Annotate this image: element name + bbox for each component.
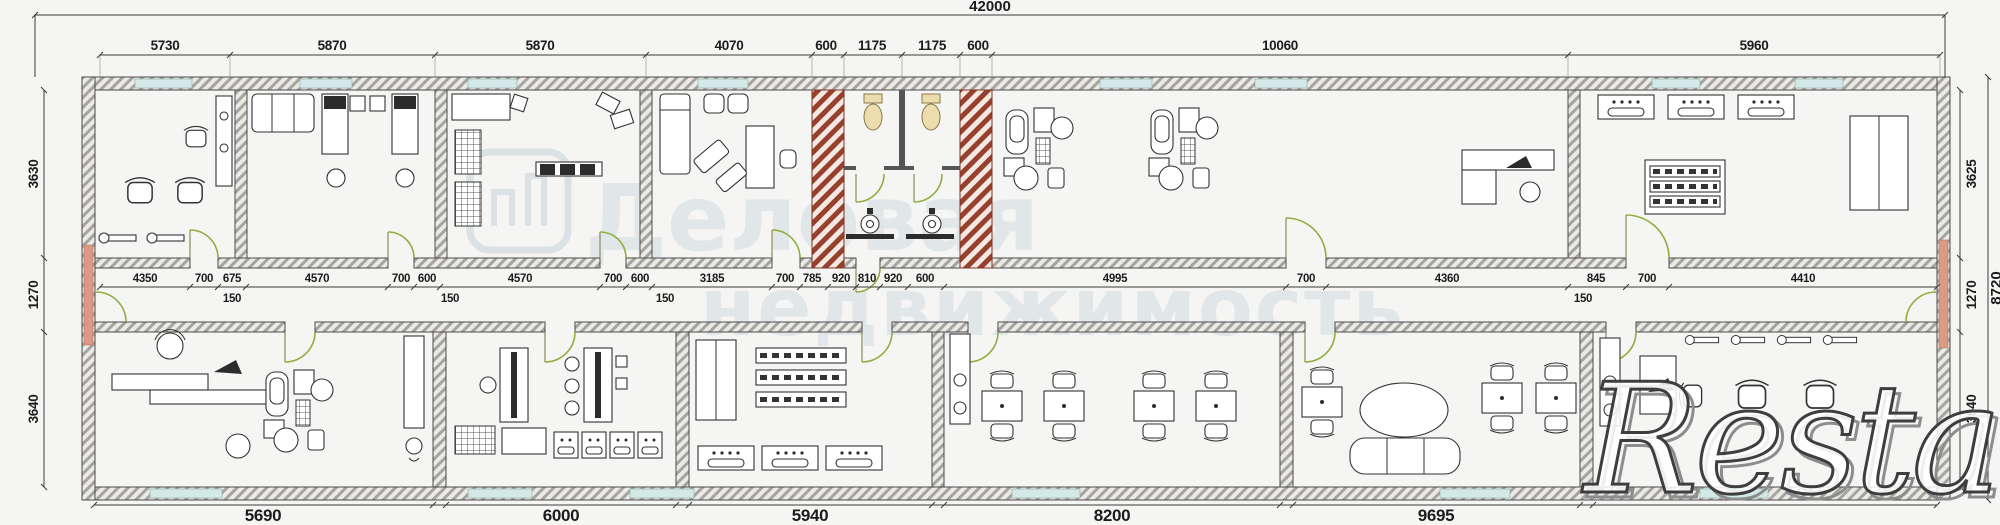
dim-bottom-2: 5940 xyxy=(792,506,829,525)
entrance-door-left xyxy=(84,245,93,345)
dim-chain-9: 3185 xyxy=(700,273,725,285)
dim-chain-5: 600 xyxy=(418,273,436,285)
dim-top-2: 5870 xyxy=(526,38,555,53)
dim-chain-2: 675 xyxy=(223,273,242,285)
dim-offset-3: 150 xyxy=(1574,293,1592,305)
shaft-left xyxy=(812,90,844,268)
dim-top-4: 600 xyxy=(815,38,837,53)
dim-chain-0: 4350 xyxy=(133,273,157,285)
dim-offset-2: 150 xyxy=(656,293,674,305)
dim-overall: 42000 xyxy=(969,0,1011,15)
dim-chain-6: 4570 xyxy=(508,273,532,285)
dim-top-7: 600 xyxy=(967,38,989,53)
dim-bottom-3: 8200 xyxy=(1094,506,1131,525)
brand-watermark-text: Restate xyxy=(1581,351,2000,525)
dim-offset-1: 150 xyxy=(441,293,459,305)
brand-watermark: Restate Restate xyxy=(1581,351,2000,525)
dim-chain-15: 600 xyxy=(916,273,934,285)
floor-plan-image: Деловая недвижимость xyxy=(0,0,2000,525)
toilet-icon xyxy=(864,94,882,130)
corridor-lower-wall xyxy=(95,322,1937,332)
dim-top-8: 10060 xyxy=(1262,38,1298,53)
dim-right-total: 8720 xyxy=(1988,271,2000,304)
dim-left-0: 3630 xyxy=(26,160,41,189)
dim-chain-11: 785 xyxy=(803,273,822,285)
dim-bottom-0: 5690 xyxy=(245,506,282,525)
toilet-icon xyxy=(922,94,940,130)
dim-chain-8: 600 xyxy=(631,273,649,285)
dim-chain-20: 700 xyxy=(1638,273,1656,285)
shaft-right xyxy=(960,90,992,268)
dim-chain-16: 4995 xyxy=(1103,273,1128,285)
dim-chain-21: 4410 xyxy=(1791,273,1815,285)
dim-top-9: 5960 xyxy=(1740,38,1769,53)
dim-top-3: 4070 xyxy=(715,38,744,53)
dim-top-5: 1175 xyxy=(858,38,887,53)
dim-chain-1: 700 xyxy=(195,273,213,285)
dim-chain-10: 700 xyxy=(776,273,794,285)
dim-chain-18: 4360 xyxy=(1435,273,1459,285)
dim-right-0: 3625 xyxy=(1964,159,1979,189)
floor-plan-canvas: Деловая недвижимость xyxy=(0,0,2000,525)
dim-chain-17: 700 xyxy=(1297,273,1315,285)
dim-chain-12: 920 xyxy=(832,273,850,285)
dim-left-1: 1270 xyxy=(26,281,41,310)
dim-chain-4: 700 xyxy=(392,273,410,285)
dim-left-2: 3640 xyxy=(26,395,41,424)
entrance-door-right xyxy=(1939,240,1948,348)
dim-chain-13: 810 xyxy=(858,273,876,285)
dim-top-6: 1175 xyxy=(918,38,947,53)
dim-bottom-1: 6000 xyxy=(543,506,580,525)
dim-bottom-4: 9695 xyxy=(1418,506,1455,525)
dim-chain-19: 845 xyxy=(1587,273,1606,285)
dim-top-1: 5870 xyxy=(318,38,347,53)
dim-chain-7: 700 xyxy=(604,273,622,285)
dim-chain-3: 4570 xyxy=(305,273,329,285)
dim-top-0: 5730 xyxy=(151,38,180,53)
dim-chain-14: 920 xyxy=(884,273,902,285)
dim-offset-0: 150 xyxy=(223,293,241,305)
dim-right-1: 1270 xyxy=(1964,281,1979,310)
